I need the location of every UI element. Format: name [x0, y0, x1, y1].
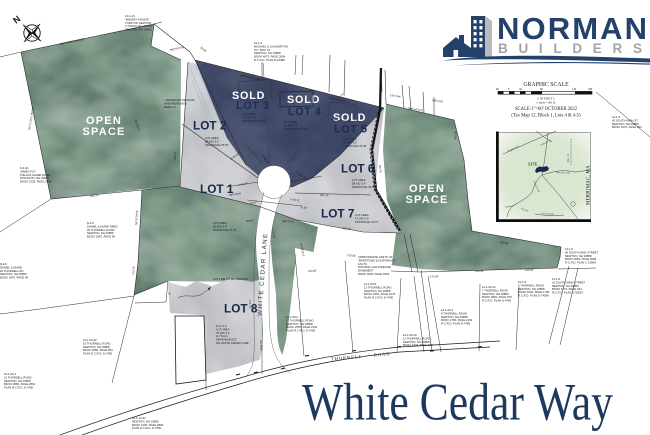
svg-text:Rte 110: Rte 110 — [567, 153, 570, 162]
svg-text:(Tax Map 12, Block 1, Lots 4 &: (Tax Map 12, Block 1, Lots 4 & 4-5) — [511, 114, 581, 119]
svg-text:SOLD: SOLD — [333, 112, 366, 124]
svg-text:PLAN R.C.R.D. D-4780: PLAN R.C.R.D. D-4780 — [4, 386, 34, 390]
svg-text:30: 30 — [519, 88, 522, 91]
svg-text:R.C.R.D. PLAN D-4780: R.C.R.D. PLAN D-4780 — [482, 299, 512, 303]
svg-text:FRONTAGE 75.07': FRONTAGE 75.07' — [355, 220, 379, 224]
svg-text:LOT 7: LOT 7 — [321, 207, 355, 221]
svg-text:LOT 3: LOT 3 — [236, 100, 270, 112]
svg-text:PLAN R.C.R.D. D-4780: PLAN R.C.R.D. D-4780 — [132, 426, 162, 430]
svg-text:SPACE: SPACE — [82, 126, 125, 138]
svg-text:MERRIMAC, MA: MERRIMAC, MA — [587, 165, 592, 205]
svg-text:FRONTAGE 75.08': FRONTAGE 75.08' — [343, 144, 367, 148]
svg-text:39.54': 39.54' — [199, 46, 208, 54]
svg-text:FRONTAGE 75.87': FRONTAGE 75.87' — [205, 143, 229, 147]
svg-text:R.C.R.D. PLAN D-13488: R.C.R.D. PLAN D-13488 — [254, 58, 285, 62]
svg-text:FRONTAGE 75.07': FRONTAGE 75.07' — [213, 228, 237, 232]
svg-text:750.32': 750.32' — [173, 151, 177, 160]
svg-text:FRONTAGE 75.37': FRONTAGE 75.37' — [284, 127, 308, 131]
svg-text:BOOK 2467, PAGE 84: BOOK 2467, PAGE 84 — [87, 235, 116, 239]
svg-text:DEED L3: DEED L3 — [164, 105, 176, 109]
svg-text:400.78': 400.78' — [320, 193, 329, 197]
svg-text:38.99': 38.99' — [246, 218, 254, 223]
svg-text:SOLD: SOLD — [287, 94, 320, 106]
svg-text:BOOK 3283, PAGE 1854: BOOK 3283, PAGE 1854 — [358, 272, 390, 276]
svg-text:ROAD: ROAD — [374, 351, 391, 357]
svg-text:N85°22'E: N85°22'E — [432, 98, 444, 104]
svg-text:60: 60 — [540, 88, 543, 91]
svg-text:R.C.R.D. PLAN D-4780: R.C.R.D. PLAN D-4780 — [441, 322, 471, 326]
svg-text:ON WHITE CEDAR LANE: ON WHITE CEDAR LANE — [216, 341, 249, 345]
svg-text:S89°54'3"W: S89°54'3"W — [169, 45, 184, 52]
svg-text:240: 240 — [588, 88, 593, 91]
svg-text:PLAN R.C.R.D. D-4780: PLAN R.C.R.D. D-4780 — [83, 352, 113, 356]
svg-text:N5°32'04"W: N5°32'04"W — [134, 210, 139, 225]
svg-text:271.45': 271.45' — [248, 300, 252, 309]
svg-text:BOOK 2467, PAGE 84: BOOK 2467, PAGE 84 — [0, 276, 29, 280]
svg-text:432.09': 432.09' — [453, 131, 458, 141]
svg-text:BOOK 3135, PAGE 2498: BOOK 3135, PAGE 2498 — [20, 180, 52, 184]
svg-text:120: 120 — [572, 88, 577, 91]
svg-text:LOT 5: LOT 5 — [334, 124, 368, 136]
svg-text:R.C.R.D. PLAN D-32820: R.C.R.D. PLAN D-32820 — [552, 291, 583, 295]
svg-text:1 inch = 60 ft.: 1 inch = 60 ft. — [536, 101, 556, 105]
svg-text:R.C.R.D. PLAN C-13848: R.C.R.D. PLAN C-13848 — [565, 261, 596, 265]
svg-text:S84°51'W: S84°51'W — [282, 219, 295, 224]
svg-text:LOT 4: LOT 4 — [288, 106, 322, 118]
svg-text:BOOK 4334, PAGE 578: BOOK 4334, PAGE 578 — [403, 343, 433, 347]
svg-text:166.58': 166.58' — [525, 268, 534, 272]
svg-text:358.70': 358.70' — [90, 193, 99, 198]
svg-text:White Cedar Way: White Cedar Way — [302, 374, 613, 432]
svg-text:N3°40'W: N3°40'W — [259, 340, 264, 351]
svg-text:R.C.R.D. PLAN D-74588: R.C.R.D. PLAN D-74588 — [518, 294, 549, 298]
svg-text:60: 60 — [496, 88, 499, 91]
svg-text:LOT LINE TO BE CREATED: LOT LINE TO BE CREATED — [213, 277, 248, 281]
svg-text:FRONTAGE 75.08': FRONTAGE 75.08' — [242, 119, 266, 123]
svg-text:BUILDERS: BUILDERS — [498, 41, 646, 56]
svg-text:FRONTAGE 78.18': FRONTAGE 78.18' — [352, 185, 376, 189]
svg-text:249.85': 249.85' — [308, 269, 317, 273]
svg-text:LOT 8: LOT 8 — [224, 302, 258, 316]
svg-text:150' S44: 150' S44 — [390, 93, 402, 99]
svg-text:170.35': 170.35' — [430, 274, 439, 278]
svg-text:0: 0 — [508, 88, 510, 91]
svg-text:N12°E: N12°E — [378, 165, 383, 173]
svg-text:BOOK 5172, PAGE 944: BOOK 5172, PAGE 944 — [612, 125, 642, 129]
svg-text:GRAPHIC SCALE: GRAPHIC SCALE — [523, 82, 569, 88]
svg-text:LOT 6: LOT 6 — [341, 162, 375, 176]
svg-text:SCALE:1"=60' OCTOBER 2022: SCALE:1"=60' OCTOBER 2022 — [515, 107, 578, 112]
svg-text:173.26': 173.26' — [131, 266, 136, 275]
svg-text:LOT 2: LOT 2 — [193, 119, 227, 133]
svg-text:N6°11'24"E 752.00': N6°11'24"E 752.00' — [27, 106, 35, 130]
svg-text:PLAN R.C.R.D. D-4780: PLAN R.C.R.D. D-4780 — [286, 329, 316, 333]
svg-text:219.85': 219.85' — [347, 253, 357, 258]
svg-text:N: N — [11, 14, 22, 26]
svg-text:133.08': 133.08' — [475, 269, 484, 273]
svg-text:NEWTON, NH 03858: NEWTON, NH 03858 — [125, 28, 152, 32]
svg-text:PLAN R.C.R.D. D-4780: PLAN R.C.R.D. D-4780 — [364, 296, 394, 300]
svg-text:SPACE: SPACE — [405, 194, 448, 206]
svg-text:SITE: SITE — [528, 162, 538, 167]
